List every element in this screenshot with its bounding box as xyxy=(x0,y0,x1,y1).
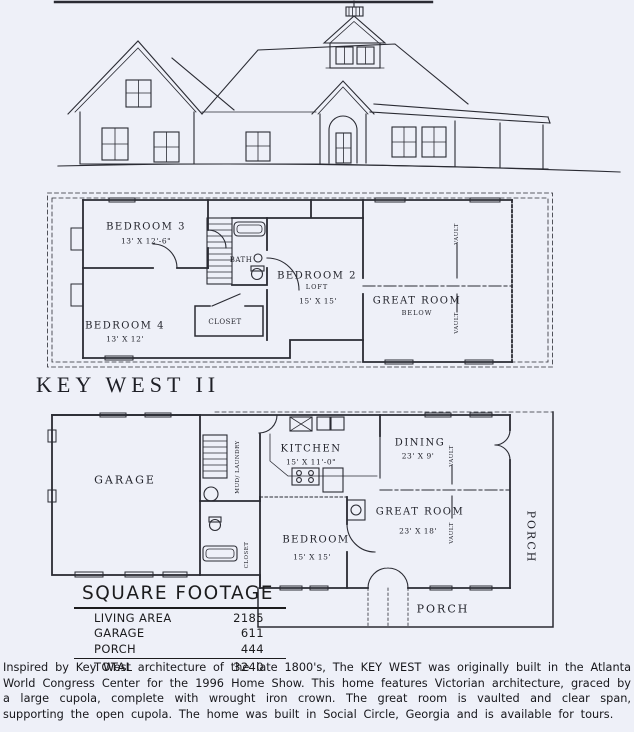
room-sub-below: BELOW xyxy=(402,309,433,317)
floor-plan-page: BEDROOM 3 13' X 12'-6" BEDROOM 4 13' X 1… xyxy=(0,0,634,732)
table-row-garage: GARAGE 611 xyxy=(74,625,286,641)
room-dims-dining: 23' X 9' xyxy=(402,452,435,461)
vault-label-upper: VAULT xyxy=(449,445,455,467)
cupola xyxy=(324,1,385,68)
closet-small-label: CLOSET xyxy=(244,542,250,569)
closet-walls xyxy=(195,294,263,336)
room-label-bedroom: BEDROOM xyxy=(282,535,349,546)
entry-gable xyxy=(312,81,374,163)
porch-label-right: PORCH xyxy=(525,511,538,564)
room-label-dining: DINING xyxy=(395,438,445,449)
row-label: PORCH xyxy=(94,642,136,656)
room-label-bedroom2: BEDROOM 2 xyxy=(277,271,357,282)
room-label-kitchen: KITCHEN xyxy=(280,444,341,455)
room-dims-great-room: 23' X 18' xyxy=(399,527,437,536)
description-paragraph: Inspired by Key West architecture of the… xyxy=(3,660,631,722)
french-doors-bottom xyxy=(368,568,408,627)
room-sub-loft: LOFT xyxy=(306,283,329,291)
room-label-bedroom3: BEDROOM 3 xyxy=(106,222,186,233)
room-dims-bedroom4: 13' X 12' xyxy=(106,335,144,344)
vault-label-lower: VAULT xyxy=(454,312,460,334)
table-row-porch: PORCH 444 xyxy=(74,640,286,656)
bath-fixtures xyxy=(234,222,265,280)
room-label-bedroom4: BEDROOM 4 xyxy=(85,321,165,332)
room-dims-bedroom3: 13' X 12'-6" xyxy=(121,237,171,246)
row-label: LIVING AREA xyxy=(94,611,172,625)
vault-label-lower: VAULT xyxy=(449,522,455,544)
row-value: 611 xyxy=(241,626,264,640)
right-wing-porch xyxy=(322,104,550,169)
stairs xyxy=(203,435,227,478)
room-label-garage: GARAGE xyxy=(94,474,156,487)
left-gable xyxy=(68,41,202,164)
plan-title: KEY WEST II xyxy=(36,372,220,398)
mech-bath-fixtures xyxy=(203,487,237,561)
house-elevation-drawing xyxy=(0,0,634,188)
row-value: 444 xyxy=(241,642,264,656)
stairs xyxy=(207,218,232,284)
room-dims-kitchen: 15' X 11'-0" xyxy=(286,458,336,467)
room-label-closet: CLOSET xyxy=(208,318,241,326)
entry-door-arc xyxy=(259,415,277,433)
room-label-mud-laundry: MUD/ LAUNDRY xyxy=(235,440,241,493)
second-floor-plan: BEDROOM 3 13' X 12'-6" BEDROOM 4 13' X 1… xyxy=(45,190,555,372)
room-label-great-room: GREAT ROOM xyxy=(376,507,465,518)
room-dims-bedroom2: 15' X 15' xyxy=(299,297,337,306)
room-label-bath: BATH xyxy=(230,256,253,264)
french-doors-right xyxy=(495,430,510,460)
great-room-walls xyxy=(260,415,510,588)
square-footage-title: SQUARE FOOTAGE xyxy=(74,583,286,609)
room-label-great-room-below: GREAT ROOM xyxy=(373,296,462,307)
row-value: 2185 xyxy=(233,611,264,625)
room-dims-bedroom: 15' X 15' xyxy=(293,553,331,562)
row-label: GARAGE xyxy=(94,626,145,640)
vault-label-upper: VAULT xyxy=(454,223,460,245)
kitchen-appliances xyxy=(270,417,377,520)
porch-label-bottom: PORCH xyxy=(417,603,470,616)
ground-line xyxy=(58,164,620,172)
table-row-living-area: LIVING AREA 2185 xyxy=(74,609,286,625)
